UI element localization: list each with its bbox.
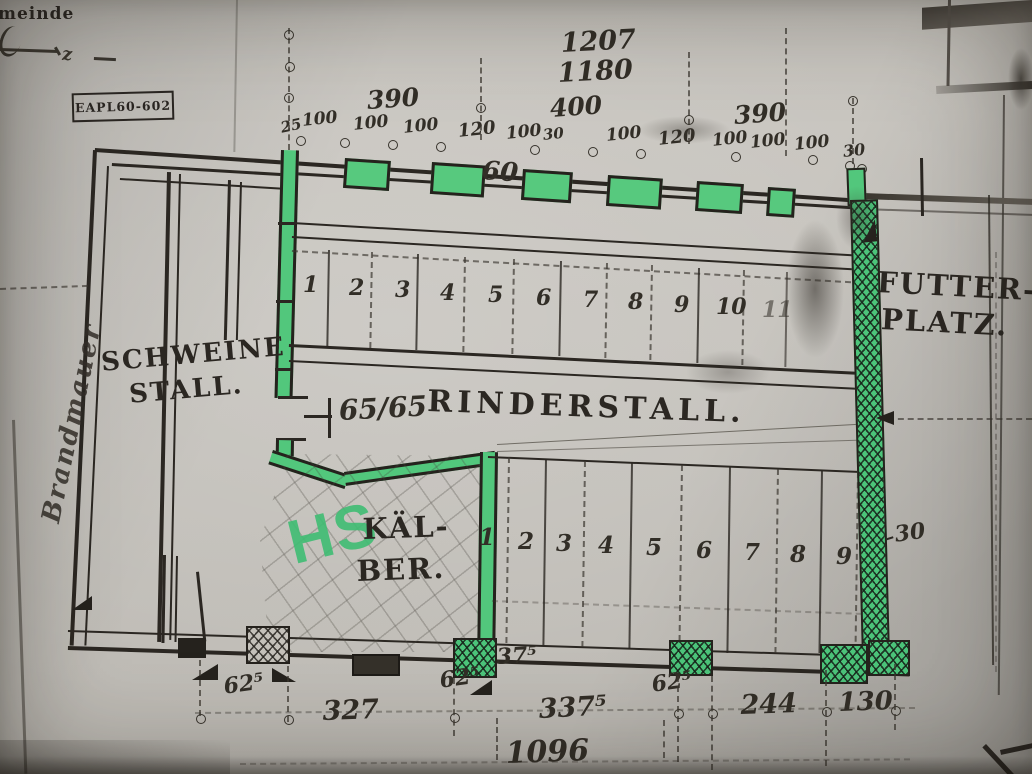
dim-point bbox=[822, 707, 832, 717]
room-label-rinderstall: RINDERSTALL. bbox=[427, 384, 746, 430]
dim-seg: 100 bbox=[301, 107, 338, 131]
room-label-futterplatz-1: FUTTER- bbox=[876, 265, 1032, 307]
corner-shadow-bottom-left bbox=[0, 740, 230, 774]
room-label-kaelber-1: KÄL- bbox=[362, 509, 450, 546]
room-label-kaelber-2: BER. bbox=[356, 551, 446, 588]
schwein-inner-wall-3 bbox=[224, 180, 231, 340]
stall-divider bbox=[649, 265, 653, 360]
dim-extension-line bbox=[480, 58, 482, 140]
bottom-dim: 37⁵ bbox=[496, 642, 538, 670]
lower-stall-number: 7 bbox=[744, 539, 760, 566]
dim-seg: 100 bbox=[793, 131, 830, 155]
bottom-dim: 62⁵ bbox=[222, 668, 265, 699]
door-leaf bbox=[196, 572, 206, 642]
stall-divider bbox=[558, 261, 561, 356]
upper-stall-number: 10 bbox=[716, 294, 747, 320]
dim-overall-1180: 1180 bbox=[557, 54, 634, 89]
dim-extension-line bbox=[677, 676, 679, 762]
ink-smudge bbox=[836, 186, 878, 250]
stall-divider bbox=[462, 257, 466, 352]
dim-extension-line bbox=[288, 28, 290, 150]
stall-divider bbox=[542, 459, 546, 645]
upper-stall-number: 5 bbox=[488, 282, 503, 308]
door-dim-tick-v bbox=[328, 398, 331, 438]
stall-divider bbox=[726, 467, 730, 653]
stamp-box: EAPL60-602 bbox=[72, 91, 175, 123]
wall-top-inner-schwein2 bbox=[120, 178, 292, 190]
stamp-label: EAPL60-602 bbox=[75, 98, 171, 116]
stall-divider bbox=[818, 471, 822, 653]
dim-point bbox=[476, 103, 486, 113]
lower-stall-number: 2 bbox=[518, 528, 534, 555]
dim-point bbox=[674, 709, 684, 719]
pier-dark bbox=[352, 654, 400, 676]
trough-dashed-line bbox=[292, 250, 861, 284]
dim-point bbox=[285, 62, 295, 72]
ink-smudge bbox=[638, 116, 730, 144]
page-edge-left bbox=[12, 420, 27, 774]
dim-point bbox=[296, 136, 306, 146]
wall-joint bbox=[275, 368, 291, 371]
bottom-dim: 62⁵ bbox=[650, 666, 693, 697]
trough-opening bbox=[521, 169, 573, 203]
stall-divider bbox=[696, 268, 699, 363]
wall-right-stub bbox=[920, 158, 924, 216]
brandmauer-leader-dash bbox=[0, 285, 88, 290]
stall-divider bbox=[604, 263, 608, 358]
dim-point bbox=[708, 709, 718, 719]
upper-stall-number: 3 bbox=[395, 277, 410, 303]
pier-green bbox=[820, 644, 868, 684]
wall-note-brandmauer: Brandmauer bbox=[30, 293, 113, 554]
dim-point bbox=[450, 713, 460, 723]
lower-stall-number: 9 bbox=[836, 543, 852, 570]
ink-smudge bbox=[786, 220, 844, 358]
handwriting-line-hook bbox=[54, 47, 61, 56]
lower-band-dashed bbox=[492, 600, 862, 615]
dim-point bbox=[530, 145, 540, 155]
dim-group-390a: 390 bbox=[366, 82, 420, 115]
stall-divider bbox=[505, 457, 510, 643]
stall-divider bbox=[628, 463, 632, 649]
wall-joint bbox=[276, 300, 292, 303]
stall-divider bbox=[678, 465, 683, 651]
bottom-dim: 327 bbox=[322, 694, 379, 727]
dim-extension-line bbox=[199, 660, 201, 716]
plan-photo: meinde z EAPL60-602 1207 1180 390 400 39… bbox=[0, 0, 1032, 774]
dim-extension-line bbox=[785, 28, 787, 156]
dim-extension-line bbox=[852, 98, 854, 164]
dim-point bbox=[636, 149, 646, 159]
lower-stall-number: 5 bbox=[646, 534, 662, 561]
dim-extension-line bbox=[894, 664, 896, 730]
dim-point bbox=[588, 147, 598, 157]
right-wall-thickness: 30 bbox=[893, 518, 927, 548]
dim-point bbox=[196, 714, 206, 724]
paper-crease bbox=[233, 0, 238, 152]
dim-point bbox=[848, 96, 858, 106]
pier-black bbox=[178, 638, 206, 658]
upper-stall-number: 9 bbox=[674, 292, 689, 318]
trough-opening bbox=[343, 158, 391, 191]
stall-divider bbox=[511, 259, 515, 354]
handwriting-squiggle bbox=[0, 24, 25, 60]
handwriting-mark: z bbox=[62, 44, 72, 65]
bottom-dim: 62⁵ bbox=[438, 662, 481, 693]
schwein-inner-stub-1 bbox=[161, 555, 166, 643]
dim-seg: 30 bbox=[542, 124, 565, 144]
upper-stall-number: 6 bbox=[536, 285, 551, 311]
door-swing-mark bbox=[272, 668, 296, 682]
frame-line-top-right-vertical bbox=[946, 0, 950, 86]
frame-line-right bbox=[998, 95, 1005, 695]
dim-seg: 100 bbox=[605, 122, 642, 146]
dim-seg: 100 bbox=[402, 114, 439, 138]
door-swing-mark bbox=[192, 664, 218, 680]
door-jamb bbox=[278, 396, 308, 399]
dim-extension-line bbox=[663, 720, 665, 758]
dim-seg: 100 bbox=[505, 120, 542, 144]
lower-stall-number: 6 bbox=[696, 537, 712, 564]
dim-extension-line bbox=[453, 678, 455, 736]
door-swing-mark bbox=[72, 596, 92, 610]
stall-divider bbox=[415, 254, 418, 350]
overall-dim: 1096 bbox=[505, 733, 590, 771]
trough-opening bbox=[430, 162, 486, 198]
dim-point bbox=[340, 138, 350, 148]
dim-extension-line bbox=[287, 666, 289, 722]
stall-divider bbox=[326, 250, 329, 347]
dim-point bbox=[891, 706, 901, 716]
trough-opening bbox=[695, 181, 744, 214]
room-label-futterplatz-2: PLATZ. bbox=[880, 302, 1009, 343]
door-dim-tick-h bbox=[304, 415, 332, 418]
dim-point bbox=[808, 155, 818, 165]
bottom-dim: 337⁵ bbox=[538, 690, 608, 725]
upper-band-bottom-2 bbox=[289, 360, 864, 390]
dim-point bbox=[436, 142, 446, 152]
door-dimension: 65/65 bbox=[338, 389, 428, 427]
dim-point bbox=[284, 93, 294, 103]
pier-hatched bbox=[246, 626, 290, 664]
dim-extension-line bbox=[496, 718, 498, 760]
handwriting-dash bbox=[94, 57, 116, 61]
dim-extension-line bbox=[825, 670, 827, 766]
upper-stall-number: 1 bbox=[303, 272, 318, 298]
upper-band-bottom-1 bbox=[289, 344, 864, 375]
dim-extension-line bbox=[711, 676, 713, 770]
dim-seg: 30 bbox=[842, 140, 866, 161]
trough-opening bbox=[766, 187, 796, 218]
room-label-schweinestall-1: SCHWEINE bbox=[100, 332, 287, 378]
stall-divider bbox=[774, 469, 779, 653]
dim-seg: 100 bbox=[352, 111, 389, 135]
trough-opening bbox=[606, 175, 663, 210]
corner-shadow-top-right bbox=[922, 0, 1032, 30]
dim-seg: 100 bbox=[749, 129, 786, 153]
dim-group-390b: 390 bbox=[733, 97, 787, 130]
pier-green bbox=[868, 640, 910, 676]
ink-smudge bbox=[686, 350, 770, 394]
lower-stall-number: 4 bbox=[598, 532, 614, 559]
dim-point bbox=[284, 30, 294, 40]
dim-point bbox=[731, 152, 741, 162]
dim-point bbox=[284, 715, 294, 725]
corner-mark-stroke bbox=[1000, 742, 1032, 755]
edge-shadow-right bbox=[1008, 48, 1032, 110]
dim-point bbox=[388, 140, 398, 150]
wall-right-outer bbox=[988, 195, 994, 665]
stall-divider bbox=[369, 252, 373, 348]
dim-seg: 25 bbox=[279, 115, 303, 137]
bottom-dim: 130 bbox=[838, 686, 893, 718]
room-label-schweinestall-2: STALL. bbox=[128, 370, 245, 410]
lower-stall-number: 8 bbox=[790, 541, 806, 568]
upper-stall-number: 7 bbox=[583, 287, 598, 313]
wall-top-extension bbox=[863, 193, 1032, 205]
trough-dimension: 60 bbox=[481, 156, 519, 188]
dim-group-400: 400 bbox=[549, 90, 603, 123]
corner-text: meinde bbox=[0, 4, 74, 24]
schwein-inner-wall-4 bbox=[236, 182, 242, 340]
upper-stall-number: 4 bbox=[440, 280, 455, 306]
futterplatz-leader-line bbox=[888, 418, 1032, 420]
dim-seg: 120 bbox=[457, 117, 497, 142]
schwein-inner-stub-2 bbox=[174, 556, 177, 642]
wall-top-inner-schwein bbox=[112, 163, 294, 177]
upper-stall-number: 2 bbox=[349, 275, 364, 301]
wall-top-extension2 bbox=[863, 208, 1032, 216]
stall-divider bbox=[581, 461, 586, 647]
leader-arrowhead bbox=[876, 411, 894, 425]
upper-stall-number: 8 bbox=[628, 289, 643, 315]
lower-stall-number: 3 bbox=[556, 530, 572, 557]
bottom-dim: 244 bbox=[740, 688, 797, 721]
lower-stall-number: 1 bbox=[479, 524, 495, 551]
